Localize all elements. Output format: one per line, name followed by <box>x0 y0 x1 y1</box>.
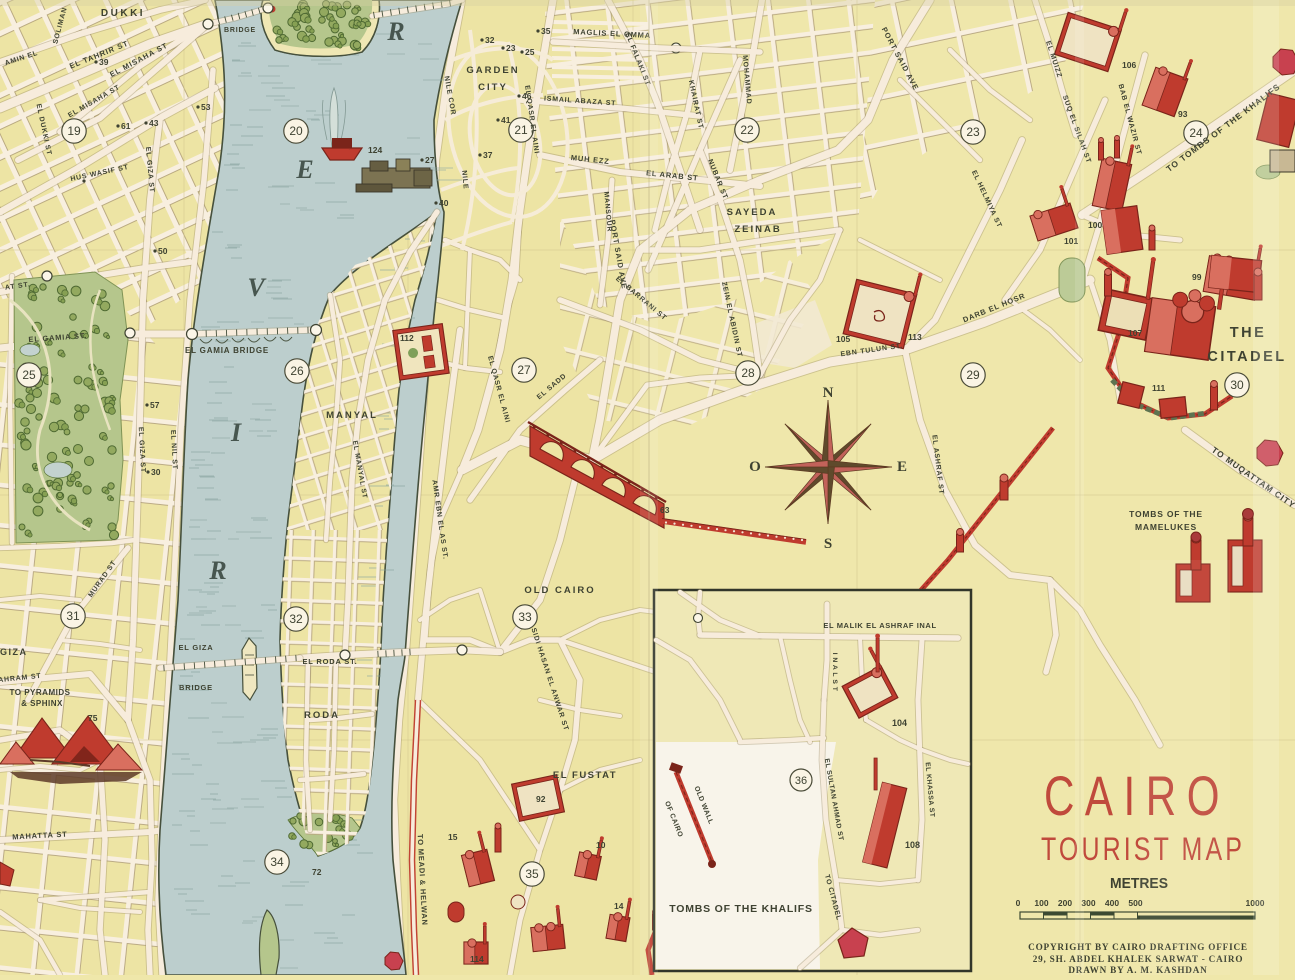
svg-text:27: 27 <box>425 155 435 165</box>
svg-text:30: 30 <box>1230 378 1244 392</box>
svg-text:113: 113 <box>908 332 922 342</box>
svg-text:104: 104 <box>892 718 907 728</box>
svg-text:26: 26 <box>290 364 304 378</box>
svg-text:25: 25 <box>525 47 535 57</box>
svg-text:93: 93 <box>1178 109 1188 119</box>
svg-text:ZEINAB: ZEINAB <box>734 224 781 235</box>
svg-text:39: 39 <box>99 57 109 67</box>
svg-text:111: 111 <box>1152 383 1166 393</box>
svg-text:S: S <box>824 536 832 552</box>
svg-text:EL GAMIA BRIDGE: EL GAMIA BRIDGE <box>185 346 269 355</box>
svg-text:EL RODA ST.: EL RODA ST. <box>302 657 357 666</box>
svg-text:63: 63 <box>660 505 670 515</box>
svg-text:30: 30 <box>151 467 161 477</box>
svg-text:72: 72 <box>312 867 322 877</box>
svg-text:0: 0 <box>1016 898 1021 908</box>
svg-text:35: 35 <box>541 26 551 36</box>
svg-text:32: 32 <box>485 35 495 45</box>
svg-text:100: 100 <box>1088 220 1102 230</box>
svg-text:35: 35 <box>525 867 539 881</box>
svg-text:57: 57 <box>150 400 160 410</box>
svg-text:37: 37 <box>483 150 493 160</box>
svg-text:O: O <box>749 459 761 475</box>
svg-text:19: 19 <box>67 124 81 138</box>
svg-text:31: 31 <box>66 609 80 623</box>
svg-text:27: 27 <box>517 363 531 377</box>
svg-text:15: 15 <box>448 832 458 842</box>
svg-text:20: 20 <box>289 124 303 138</box>
svg-text:TO PYRAMIDS: TO PYRAMIDS <box>10 688 71 697</box>
svg-text:E: E <box>295 155 313 184</box>
svg-text:200: 200 <box>1058 898 1072 908</box>
svg-text:I: I <box>230 418 242 447</box>
svg-text:21: 21 <box>514 123 528 137</box>
svg-text:I N A L S T: I N A L S T <box>831 653 838 692</box>
svg-text:92: 92 <box>536 794 546 804</box>
svg-text:N: N <box>823 385 834 401</box>
svg-text:CITY: CITY <box>478 82 508 93</box>
svg-text:23: 23 <box>506 43 516 53</box>
svg-text:124: 124 <box>368 145 382 155</box>
svg-text:R: R <box>386 17 404 46</box>
svg-text:MAMELUKES: MAMELUKES <box>1135 522 1197 532</box>
svg-text:43: 43 <box>149 118 159 128</box>
svg-text:R: R <box>208 556 226 585</box>
svg-text:V: V <box>247 273 267 302</box>
svg-text:107: 107 <box>1128 328 1142 338</box>
svg-text:22: 22 <box>740 123 754 137</box>
svg-text:106: 106 <box>1122 60 1136 70</box>
svg-text:E: E <box>897 459 907 475</box>
svg-text:53: 53 <box>201 102 211 112</box>
svg-text:EL GIZA: EL GIZA <box>178 643 213 652</box>
svg-text:40: 40 <box>439 198 449 208</box>
svg-text:BRIDGE: BRIDGE <box>224 27 256 34</box>
svg-text:114: 114 <box>470 954 484 964</box>
svg-text:GIZA: GIZA <box>0 647 28 657</box>
svg-text:108: 108 <box>905 840 920 850</box>
svg-text:EL FUSTAT: EL FUSTAT <box>553 770 617 781</box>
svg-text:36: 36 <box>795 775 807 787</box>
svg-text:61: 61 <box>121 121 131 131</box>
svg-text:BRIDGE: BRIDGE <box>179 683 213 692</box>
svg-text:SAYEDA: SAYEDA <box>727 207 778 218</box>
svg-text:& SPHINX: & SPHINX <box>21 699 63 708</box>
svg-text:100: 100 <box>1034 898 1048 908</box>
svg-text:DUKKI: DUKKI <box>101 8 145 19</box>
svg-text:33: 33 <box>518 610 532 624</box>
svg-text:99: 99 <box>1192 272 1202 282</box>
svg-text:TOMBS OF THE KHALIFS: TOMBS OF THE KHALIFS <box>669 903 813 915</box>
svg-text:32: 32 <box>289 612 303 626</box>
svg-text:34: 34 <box>270 855 284 869</box>
svg-text:75: 75 <box>88 713 98 723</box>
svg-text:50: 50 <box>158 246 168 256</box>
svg-text:105: 105 <box>836 334 850 344</box>
svg-text:23: 23 <box>966 125 980 139</box>
svg-text:EL MALIK EL ASHRAF INAL: EL MALIK EL ASHRAF INAL <box>823 621 936 630</box>
svg-text:OLD CAIRO: OLD CAIRO <box>524 585 595 596</box>
svg-text:112: 112 <box>400 333 414 343</box>
svg-text:GARDEN: GARDEN <box>466 65 519 76</box>
svg-text:R: R <box>349 149 351 151</box>
svg-text:14: 14 <box>614 901 624 911</box>
svg-text:46: 46 <box>522 91 532 101</box>
svg-text:RODA: RODA <box>304 710 340 721</box>
svg-text:10: 10 <box>596 840 606 850</box>
svg-text:400: 400 <box>1105 898 1119 908</box>
svg-text:28: 28 <box>741 366 755 380</box>
svg-text:TOMBS OF THE: TOMBS OF THE <box>1129 509 1203 519</box>
svg-text:41: 41 <box>501 115 511 125</box>
svg-text:MANYAL: MANYAL <box>326 410 378 421</box>
svg-text:25: 25 <box>22 368 36 382</box>
svg-text:29: 29 <box>966 368 980 382</box>
